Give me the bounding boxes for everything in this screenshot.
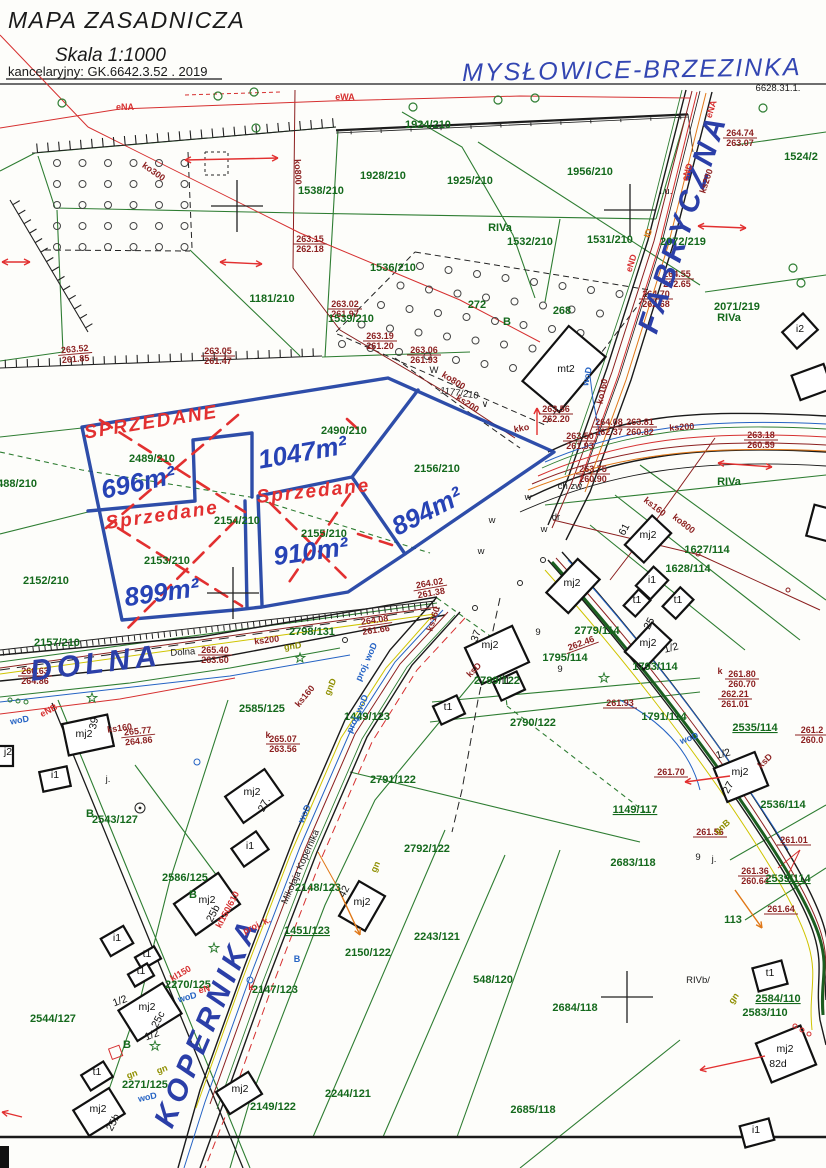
- building-label: mj2: [90, 1103, 107, 1115]
- elevation-top: 263.02: [331, 299, 359, 309]
- grid-cross: [601, 971, 653, 1023]
- grid-cross: [211, 180, 263, 232]
- map-text: 9: [695, 852, 700, 863]
- parcel-number: 1531/210: [587, 234, 633, 246]
- building-label: i2: [796, 323, 804, 335]
- map-text: ch.zw.: [558, 481, 584, 492]
- tree-symbol: [156, 244, 163, 251]
- parcel-number: 1539/210: [328, 313, 374, 325]
- tree-symbol: [540, 302, 547, 309]
- elevation-top: 263.56: [542, 404, 570, 414]
- parcel-number: 2150/122: [345, 947, 391, 959]
- tree-symbol: [54, 223, 61, 230]
- tree-symbol: [406, 306, 413, 313]
- elevation-label: 263.06261.93: [407, 345, 441, 365]
- utility-label: eNA: [116, 102, 135, 112]
- tree-symbol: [130, 160, 137, 167]
- tree-symbol: [397, 282, 404, 289]
- building-label: i1: [502, 675, 510, 687]
- parcel-number: B: [189, 889, 197, 901]
- parcel-number: RIVa: [717, 312, 742, 324]
- elevation-top: 265.07: [269, 734, 297, 744]
- building-label: mt2: [557, 363, 575, 375]
- tree-symbol: [24, 700, 28, 704]
- parcel-number: 2789/122: [474, 675, 520, 687]
- tree-symbol: [797, 279, 805, 287]
- parcel-number: 2535/114: [732, 722, 778, 734]
- parcel-number: 268: [553, 305, 571, 317]
- tree-symbol: [156, 202, 163, 209]
- utility-label: ks160: [293, 683, 317, 709]
- tree-symbol: [8, 698, 12, 702]
- tree-symbol: [494, 96, 502, 104]
- map-text: w: [488, 515, 496, 526]
- parcel-number: B: [503, 316, 511, 328]
- building-label: mj2: [482, 639, 499, 651]
- tree-symbol: [501, 341, 508, 348]
- parcel-number: 1181/210: [249, 293, 294, 305]
- parcel-number: 1538/210: [298, 185, 344, 197]
- parcel-number: 1532/210: [507, 236, 553, 248]
- elevation-top: 263.81: [626, 417, 654, 427]
- elevation-top: 263.06: [410, 345, 438, 355]
- slope-arrow: [700, 1056, 765, 1070]
- star-symbol: [87, 693, 97, 702]
- tree-symbol: [520, 322, 527, 329]
- elevation-bottom: 260.0: [801, 735, 824, 745]
- scarp-hatch: [10, 200, 92, 332]
- elevation-bottom: 260.70: [728, 679, 756, 689]
- parcel-number: 1924/210: [405, 119, 451, 131]
- parcel-number: 2488/210: [0, 478, 37, 490]
- parcel-number: 113: [724, 914, 742, 926]
- utility-label: gnD: [283, 640, 302, 652]
- parcel-number: 2271/125: [122, 1079, 168, 1091]
- utility-label: ks200: [254, 634, 280, 647]
- parcel-number: 1925/210: [447, 175, 493, 187]
- building-label: i1: [648, 574, 656, 586]
- building-label: t1: [674, 594, 683, 606]
- elevation-label: 261.80260.70: [725, 669, 759, 689]
- elevation-bottom: 262.18: [296, 244, 324, 254]
- tree-symbol: [105, 223, 112, 230]
- tree-symbol: [463, 314, 470, 321]
- map-text: i.u.: [660, 186, 673, 197]
- tree-symbol: [79, 244, 86, 251]
- elevation-top: 263.05: [204, 346, 232, 356]
- tree-symbol: [529, 345, 536, 352]
- building-label: t1: [143, 948, 152, 960]
- tree-symbol: [549, 326, 556, 333]
- elevation-bottom: 261.20: [366, 341, 394, 351]
- parcel-number: 1536/210: [370, 262, 416, 274]
- tree-symbol: [531, 94, 539, 102]
- elevation-label: 264.08262.37: [592, 417, 626, 437]
- utility-label: kko: [513, 422, 531, 435]
- parcel-number: 2584/110: [755, 993, 800, 1005]
- parcel-number: 1628/114: [665, 563, 711, 575]
- tree-symbol: [445, 267, 452, 274]
- utility-label: eWA: [335, 92, 355, 102]
- utility-label: eNB: [38, 701, 59, 719]
- map-text: dr: [552, 512, 560, 523]
- utility-point: [807, 1032, 811, 1036]
- scarp-hatch: [32, 118, 336, 153]
- parcel-number: 1524/2: [784, 151, 818, 163]
- map-text: RIVb/: [686, 975, 710, 986]
- elevation-top: 263.18: [747, 430, 775, 440]
- manhole-symbol: [473, 606, 478, 611]
- slope-arrow: [185, 158, 278, 160]
- parcel-number: 2683/118: [610, 857, 655, 869]
- utility-label: proj. woD: [353, 641, 379, 683]
- tree-symbol: [759, 104, 767, 112]
- utility-label: ksD: [756, 751, 775, 770]
- elevation-bottom: 263.07: [726, 138, 754, 148]
- elevation-label: 263.50261.93: [563, 431, 597, 451]
- tree-symbol: [435, 310, 442, 317]
- elevation-bottom: 263.56: [269, 744, 297, 754]
- tree-symbol: [105, 244, 112, 251]
- map-text: j.: [105, 774, 111, 785]
- elevation-top: 261.70: [657, 767, 685, 777]
- map-text: w: [477, 546, 485, 557]
- star-symbol: [150, 1041, 160, 1050]
- star-symbol: [599, 673, 609, 682]
- parcel-number: 2543/127: [92, 814, 138, 826]
- map-text: ∨: [482, 399, 489, 410]
- elevation-top: 261.64: [767, 904, 795, 914]
- elevation-bottom: 261.47: [204, 356, 232, 366]
- parcel-number: 2685/118: [510, 1104, 555, 1116]
- scarp-hatch: [0, 348, 322, 368]
- map-text: 6628.31.1.: [756, 83, 801, 94]
- tree-symbol: [181, 223, 188, 230]
- parcel-number: B: [86, 808, 94, 820]
- map-title: MAPA ZASADNICZA: [8, 7, 245, 33]
- elevation-label: 265.07263.56: [266, 734, 300, 754]
- parcel-number: 1451/123: [284, 925, 330, 937]
- page-corner-mark: [0, 1146, 9, 1168]
- elevation-label: 264.08261.66: [357, 613, 393, 638]
- elevation-label: 263.05261.47: [201, 346, 235, 366]
- manhole-symbol: [518, 581, 523, 586]
- parcel-number: 2798/131: [289, 626, 335, 638]
- slope-arrow: [220, 262, 262, 264]
- tree-symbol: [378, 302, 385, 309]
- elevation-top: 261.93: [606, 698, 634, 708]
- elevation-label: 262.21261.01: [718, 689, 752, 709]
- building-label: i1: [113, 932, 121, 944]
- tree-symbol: [409, 103, 417, 111]
- building-label: 82d: [769, 1058, 787, 1070]
- tree-symbol: [105, 181, 112, 188]
- utility-label: łD: [642, 227, 654, 239]
- building-label: i1: [51, 769, 59, 781]
- tree-symbol: [79, 223, 86, 230]
- elevation-label: 264.02261.38: [412, 575, 449, 601]
- tree-symbol: [789, 264, 797, 272]
- utility-label: ko800: [293, 159, 304, 185]
- parcel-number: RIVa: [717, 476, 742, 488]
- tree-symbol: [156, 223, 163, 230]
- utility-point: [786, 588, 790, 592]
- tree-symbol: [454, 290, 461, 297]
- tree-symbol: [79, 160, 86, 167]
- tree-symbol: [588, 287, 595, 294]
- building-label: mj2: [244, 786, 261, 798]
- utility-label: k: [717, 666, 723, 676]
- parcel-number: 2490/210: [321, 425, 367, 437]
- region-title: MYSŁOWICE-BRZEZINKA: [462, 53, 802, 87]
- map-text: 9: [535, 627, 540, 638]
- manhole-symbol: [343, 638, 348, 643]
- map-text: w: [524, 492, 532, 503]
- elevation-top: 263.19: [366, 331, 394, 341]
- elevation-label: 263.15262.18: [293, 234, 327, 254]
- building-label: mj2: [76, 728, 93, 740]
- parcel-number: 2149/122: [250, 1101, 296, 1113]
- utility-label: gnD: [322, 676, 338, 697]
- utility-label: gn: [368, 860, 382, 874]
- water-valve-symbol: [194, 759, 200, 765]
- parcel-number: 2544/127: [30, 1013, 76, 1025]
- tree-symbol: [415, 329, 422, 336]
- map-text: w: [540, 524, 548, 535]
- utility-label: ks200: [669, 421, 695, 433]
- parcel-number: 2585/125: [239, 703, 285, 715]
- map-text: 9: [557, 664, 562, 675]
- parcel-number: 2153/210: [144, 555, 190, 567]
- tree-symbol: [339, 341, 346, 348]
- elevation-bottom: 261.93: [410, 355, 438, 365]
- building: [792, 364, 826, 400]
- utility-label: ko800: [671, 512, 697, 536]
- tree-symbol: [444, 333, 451, 340]
- building: [806, 505, 826, 542]
- elevation-bottom: 261.01: [721, 699, 749, 709]
- tree-symbol: [250, 88, 258, 96]
- map-text: Dolna: [170, 646, 196, 659]
- building-label: mj2: [777, 1043, 794, 1055]
- elevation-top: 262.21: [721, 689, 749, 699]
- elevation-label: 261.01: [777, 835, 811, 845]
- parcel-number: 1956/210: [567, 166, 613, 178]
- tree-symbol: [502, 275, 509, 282]
- utility-label: gn: [726, 991, 741, 1006]
- elevation-bottom: 260.82: [626, 427, 654, 437]
- parcel-number: 2072/219: [660, 236, 706, 248]
- building-label: t1: [444, 701, 453, 713]
- building-label: t1: [137, 965, 146, 977]
- elevation-top: 263.15: [296, 234, 324, 244]
- building-label: t1: [633, 594, 642, 606]
- area-annotation: 696m²: [98, 459, 179, 504]
- elevation-bottom: 263.60: [201, 655, 229, 665]
- tree-symbol: [130, 181, 137, 188]
- elevation-bottom: 261.93: [566, 441, 594, 451]
- utility-label: k.: [248, 982, 256, 992]
- utility-label: woD: [176, 990, 198, 1005]
- tree-symbol: [481, 361, 488, 368]
- elevation-label: 263.81260.82: [623, 417, 657, 437]
- utility-label: ks160: [642, 495, 668, 518]
- parcel-number: 2157/210: [34, 637, 80, 649]
- tree-symbol: [214, 92, 222, 100]
- utility-label: woD: [8, 713, 30, 726]
- parcel-number: 2536/114: [760, 799, 806, 811]
- utility-label: B: [294, 954, 301, 964]
- parcel-number: 2154/210: [214, 515, 260, 527]
- building-label: mj2: [564, 577, 581, 589]
- tree-symbol: [54, 244, 61, 251]
- parcel-number: B: [123, 1039, 131, 1051]
- elevation-top: 263.50: [566, 431, 594, 441]
- elevation-top: 261.80: [728, 669, 756, 679]
- building-label: t1: [93, 1066, 102, 1078]
- tree-symbol: [472, 337, 479, 344]
- parcel-number: 2539/114: [765, 873, 811, 885]
- building-label: mj2: [354, 896, 371, 908]
- parcel-number: RIVa: [488, 222, 513, 234]
- utility-label: ko300: [140, 160, 167, 183]
- tree-symbol: [54, 160, 61, 167]
- parcel-number: 2489/210: [129, 453, 175, 465]
- tree-symbol: [130, 223, 137, 230]
- parcel-number: 1791/114: [641, 711, 687, 723]
- tree-symbol: [181, 202, 188, 209]
- tree-symbol: [181, 181, 188, 188]
- parcel-number: 2790/122: [510, 717, 556, 729]
- elevation-label: 261.2260.0: [795, 725, 826, 745]
- tree-symbol: [616, 291, 623, 298]
- elevation-label: 261.64: [764, 904, 798, 914]
- tree-symbol: [531, 279, 538, 286]
- cadastral-map: 263.15262.18263.02261.97263.19261.20263.…: [0, 0, 826, 1168]
- parcel-number: 2583/110: [742, 1007, 787, 1019]
- slope-arrow: [698, 226, 746, 228]
- building-label: mj2: [232, 1083, 249, 1095]
- elevation-bottom: 260.59: [747, 440, 775, 450]
- building-label: 1/2: [715, 746, 732, 761]
- building-label: mj2: [640, 529, 657, 541]
- parcel-number: 2155/210: [301, 528, 347, 540]
- parcel-number: 1928/210: [360, 170, 406, 182]
- parcel-number: 2792/122: [404, 843, 450, 855]
- parcel-number: 2152/210: [23, 575, 69, 587]
- sold-annotation: Sprzedane: [256, 475, 372, 508]
- elevation-label: 263.19261.20: [363, 331, 397, 351]
- parcel-number: 272: [468, 299, 486, 311]
- tree-symbol: [105, 160, 112, 167]
- building-label: i1: [752, 1124, 760, 1136]
- elevation-label: 265.40263.60: [198, 645, 232, 665]
- area-annotation: 899m²: [122, 572, 202, 612]
- tree-symbol: [79, 202, 86, 209]
- elevation-label: 261.70: [654, 767, 688, 777]
- tree-symbol: [417, 263, 424, 270]
- tree-symbol: [105, 202, 112, 209]
- parcel-number: 2779/114: [574, 625, 620, 637]
- building-label: i1: [246, 840, 254, 852]
- building-label: t1: [766, 967, 775, 979]
- parcel-number: 1793/114: [632, 661, 678, 673]
- map-text: j.: [711, 854, 717, 865]
- building-label: 1/2: [663, 640, 680, 655]
- parcel-number: 2147/123: [252, 984, 298, 996]
- map-scale: Skala 1:1000: [55, 45, 166, 66]
- elevation-top: 265.40: [201, 645, 229, 655]
- parcel-number: 2586/125: [162, 872, 208, 884]
- parcel-number: 1627/114: [684, 544, 730, 556]
- sold-annotation: SPRZEDANE: [83, 402, 220, 444]
- elevation-top: 264.08: [595, 417, 623, 427]
- star-symbol: [209, 943, 219, 952]
- tree-symbol: [79, 181, 86, 188]
- elevation-label: 261.93: [603, 698, 637, 708]
- tree-symbol: [181, 244, 188, 251]
- map-text: W: [430, 365, 439, 376]
- elevation-top: 261.01: [780, 835, 808, 845]
- utility-label: woD: [295, 803, 312, 826]
- elevation-top: 261.2: [801, 725, 824, 735]
- parcel-number: 2684/118: [552, 1002, 597, 1014]
- elevation-top: 263.75: [579, 464, 607, 474]
- tree-symbol: [474, 271, 481, 278]
- parcel-number: 2244/121: [325, 1088, 371, 1100]
- tree-symbol: [453, 357, 460, 364]
- elevation-label: 263.52261.85: [57, 343, 93, 366]
- well-symbol: [139, 807, 142, 810]
- parcel-number: 2148/123: [295, 882, 341, 894]
- scanned-map-page: 263.15262.18263.02261.97263.19261.20263.…: [0, 0, 826, 1168]
- building-label: mj2: [139, 1001, 156, 1013]
- parcel-number: 2156/210: [414, 463, 460, 475]
- parcel-number: 1795/114: [542, 652, 588, 664]
- building-label: mj2: [732, 766, 749, 778]
- tree-symbol: [597, 310, 604, 317]
- map-reference-number: kancelaryjny: GK.6642.3.52 . 2019: [8, 64, 207, 79]
- elevation-label: 263.18260.59: [744, 430, 778, 450]
- elevation-bottom: 262.20: [542, 414, 570, 424]
- elevation-bottom: 262.37: [595, 427, 623, 437]
- tree-symbol: [130, 202, 137, 209]
- tree-symbol: [559, 283, 566, 290]
- parcel-number: 2243/121: [414, 931, 460, 943]
- elevation-label: 263.56262.20: [539, 404, 573, 424]
- building-label: j2: [3, 746, 12, 758]
- manhole-symbol: [541, 558, 546, 563]
- parcel-number: 548/120: [473, 974, 513, 986]
- parcel-number: 1149/117: [613, 804, 658, 816]
- elevation-bottom: 264.86: [125, 735, 153, 748]
- tree-symbol: [511, 298, 518, 305]
- tree-symbol: [130, 244, 137, 251]
- elevation-bottom: 261.85: [61, 353, 89, 365]
- area-annotation: 894m²: [387, 480, 469, 541]
- map-labels: MYSŁOWICE-BRZEZINKADOLNAKOPERNIKAFABRYCZ…: [0, 53, 818, 1136]
- parcel-number: 2791/122: [370, 774, 416, 786]
- tree-symbol: [510, 365, 517, 372]
- building-label: mj2: [640, 637, 657, 649]
- tree-symbol: [54, 181, 61, 188]
